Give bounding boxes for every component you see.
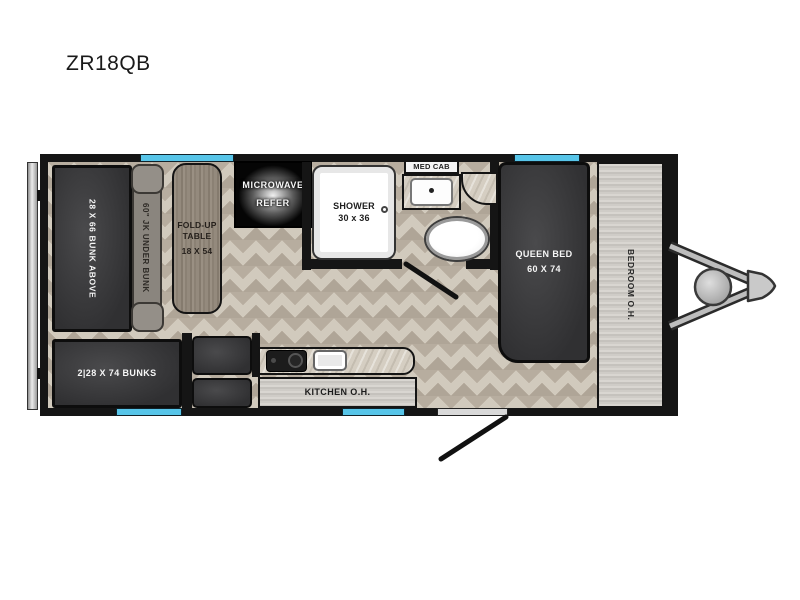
- hitch-coupler: [748, 271, 775, 301]
- floorplan-page: ZR18QB 28 X 66 BUNK ABOVE 60" JK UNDER B…: [0, 0, 800, 600]
- entry-door-swing: [441, 417, 506, 459]
- overlay-graphics: [0, 0, 800, 600]
- bathroom-door-swing: [406, 264, 456, 297]
- propane-tank: [695, 269, 731, 305]
